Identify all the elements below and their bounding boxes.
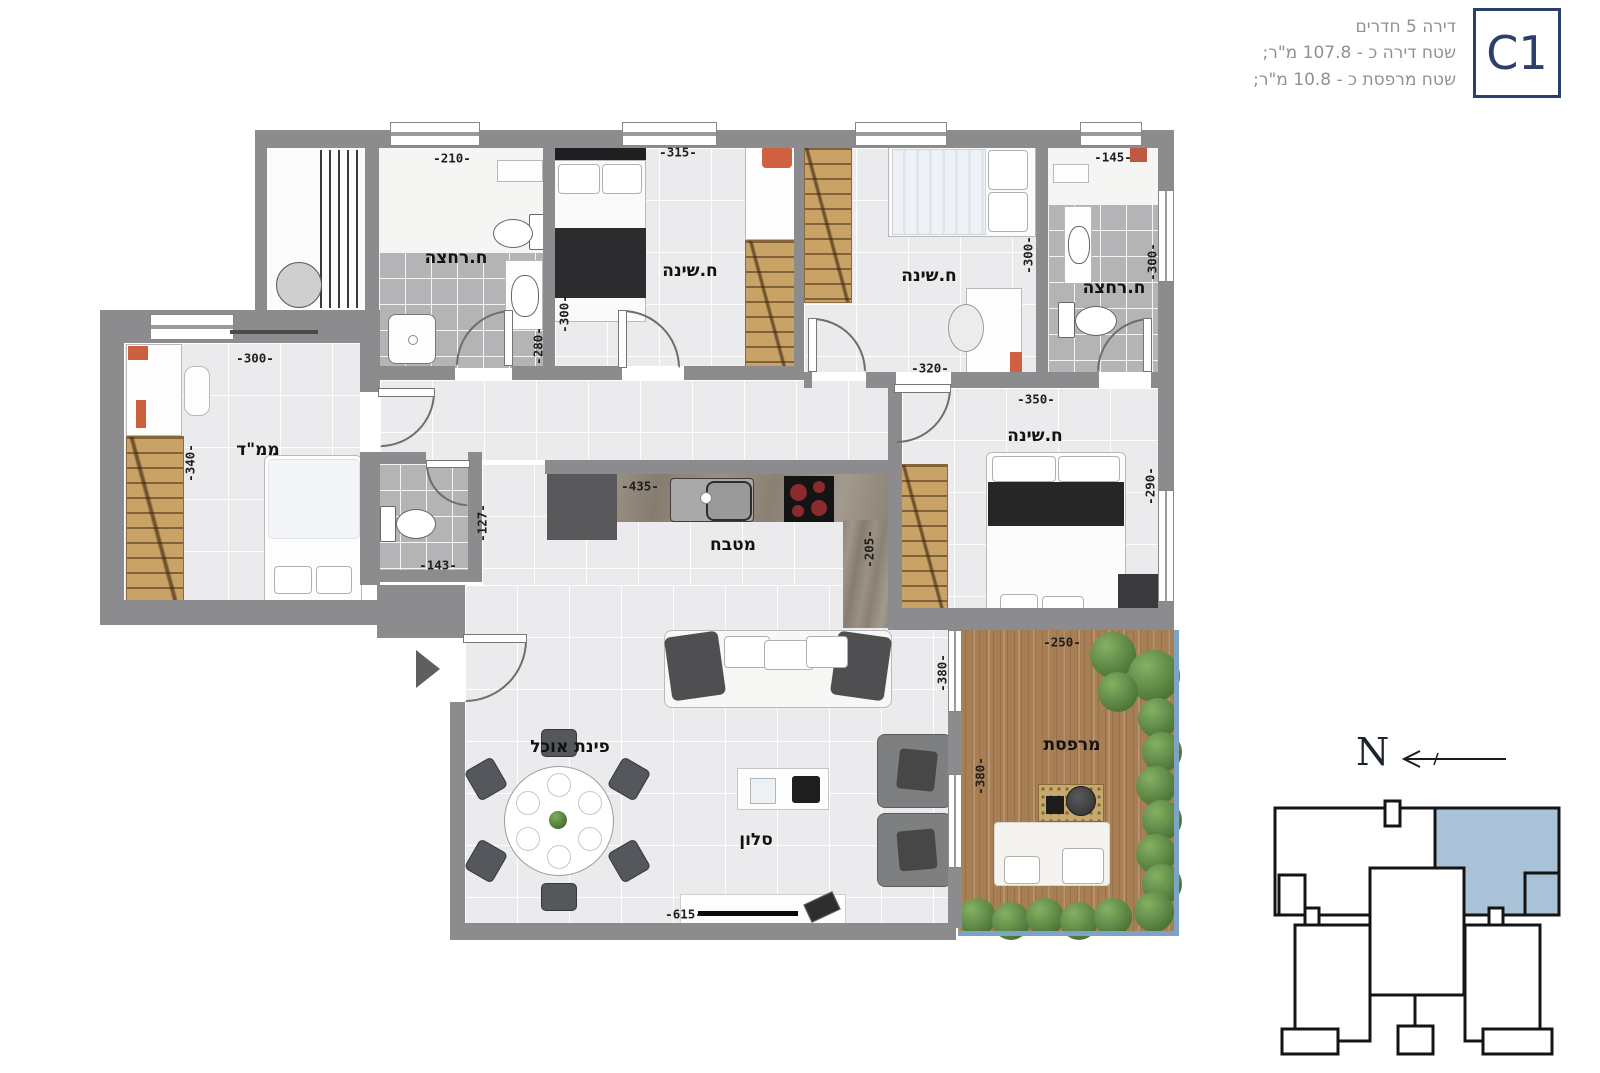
room-label-bath1: ח.רחצה [425, 248, 488, 268]
dim-label: -205- [862, 530, 877, 568]
sofa-cushion-dark [664, 631, 726, 702]
north-arrow-icon [1394, 748, 1514, 770]
toilet-tank [380, 506, 396, 542]
dining-chair [541, 883, 577, 911]
window [150, 314, 234, 340]
shower-drain [408, 335, 418, 345]
room-label-mamad: ממ"ד [236, 440, 279, 460]
room-label-bath2: ח.רחצה [1083, 278, 1146, 298]
dim-label: -300- [1021, 236, 1036, 274]
pillow [602, 164, 642, 194]
sink-basin [1068, 226, 1090, 264]
toilet-bowl [396, 509, 436, 539]
outdoor-cushion [1004, 856, 1040, 884]
window [390, 122, 480, 146]
room-label-living: סלון [739, 830, 773, 850]
window [1080, 122, 1142, 146]
dim-label: -300- [557, 295, 572, 333]
sliding-door [948, 630, 962, 712]
plate [578, 791, 602, 815]
unit-code-badge: C1 [1473, 8, 1561, 98]
pillow [558, 164, 600, 194]
pillow [988, 192, 1028, 232]
toilet-bowl [493, 219, 533, 248]
room-label-bed1: ח.שינה [662, 261, 717, 281]
coffee-table-book [750, 778, 776, 804]
bed-duvet [268, 459, 360, 539]
cabinet-accent [136, 400, 146, 428]
wall [450, 923, 956, 940]
wall [804, 372, 812, 388]
bath-accent [1130, 148, 1147, 162]
dim-label: -350- [1017, 392, 1055, 407]
tv [698, 911, 798, 916]
wall [888, 608, 1172, 630]
burner [792, 505, 804, 517]
bed-duvet [892, 149, 986, 235]
outdoor-table-top [1066, 786, 1096, 816]
apartment-area: שטח דירה כ - 107.8 מ"ר; [1253, 40, 1456, 66]
wall [450, 702, 465, 940]
door-leaf [378, 388, 435, 397]
wall [100, 600, 380, 625]
desk-chair [948, 304, 984, 352]
plate [578, 827, 602, 851]
door-leaf [894, 384, 951, 393]
dim-label: -340- [183, 444, 198, 482]
bathroom2-counter [1053, 164, 1089, 183]
door-leaf [504, 310, 513, 366]
wardrobe [126, 436, 184, 606]
toilet-bowl [1075, 306, 1117, 336]
burner [813, 481, 825, 493]
dim-label: -435- [621, 479, 659, 494]
wall [794, 130, 804, 380]
sliding-door [948, 774, 962, 868]
table-centerpiece [549, 811, 567, 829]
door-leaf [463, 634, 527, 643]
entry-arrow-icon [416, 650, 440, 688]
room-label-balcony: מרפסת [1044, 735, 1101, 755]
window-track [230, 330, 318, 334]
outdoor-tray [1046, 796, 1064, 814]
wall [360, 452, 380, 585]
wall [365, 366, 455, 380]
burner [790, 484, 807, 501]
wall [866, 372, 896, 388]
wall [951, 372, 1099, 388]
door-leaf [618, 310, 627, 368]
wall [368, 452, 426, 464]
faucet [700, 492, 712, 504]
tree [1098, 672, 1138, 712]
balcony-area: שטח מרפסת כ - 10.8 מ"ר; [1253, 67, 1456, 93]
door-leaf [808, 318, 817, 372]
burner [811, 500, 827, 516]
dim-label: -300- [236, 351, 274, 366]
sink-bowl [706, 481, 752, 521]
cabinet-accent [128, 346, 148, 360]
room-label-master: ח.שינה [1007, 426, 1062, 446]
armchair-pillow [896, 828, 937, 871]
hedge [1134, 892, 1174, 932]
sofa-pillow [806, 636, 848, 668]
coffee-table-tray [792, 776, 820, 803]
pillow [988, 150, 1028, 190]
window [855, 122, 947, 146]
pillow [316, 566, 352, 594]
window [1158, 490, 1174, 602]
pillow [1058, 456, 1120, 482]
wall [1036, 130, 1048, 380]
door-leaf [1143, 318, 1152, 372]
outdoor-cushion [1062, 848, 1104, 884]
wardrobe [745, 240, 795, 380]
window [622, 122, 717, 146]
dim-label: -320- [911, 361, 949, 376]
dim-label: -380- [973, 757, 988, 795]
floorplan-page: דירה 5 חדרים שטח דירה כ - 107.8 מ"ר; שטח… [0, 0, 1600, 1067]
wall [545, 460, 890, 474]
mamad-sink [184, 366, 210, 416]
dim-label: -380- [935, 654, 950, 692]
elevator-circle [276, 262, 322, 308]
dim-label: -290- [1143, 467, 1158, 505]
wardrobe [900, 464, 948, 612]
door-leaf [426, 460, 470, 468]
wall [1151, 372, 1172, 388]
refrigerator [547, 474, 617, 540]
wall [543, 366, 622, 380]
dim-label: -300- [1145, 243, 1160, 281]
dim-label: -143- [419, 558, 457, 573]
apartment-type: דירה 5 חדרים [1253, 14, 1456, 40]
bed-blanket [552, 228, 646, 298]
dim-label: -145- [1094, 150, 1132, 165]
dim-label: -210- [433, 151, 471, 166]
plate [547, 773, 571, 797]
dim-label: -127- [475, 504, 490, 542]
armchair-pillow [896, 748, 938, 792]
wall [684, 366, 804, 380]
wall [365, 130, 379, 312]
sink-basin [511, 275, 539, 317]
toilet-tank [1058, 302, 1075, 338]
wardrobe [804, 147, 852, 303]
desk-chair [762, 146, 792, 168]
plate [547, 845, 571, 869]
dim-label: -615- [665, 907, 703, 922]
dim-label: -250- [1043, 635, 1081, 650]
hall-floor [380, 380, 888, 460]
wall [948, 712, 962, 776]
dim-label: -315- [659, 145, 697, 160]
pillow [992, 456, 1056, 482]
room-label-bed2: ח.שינה [901, 266, 956, 286]
plate [516, 827, 540, 851]
balcony-railing-bottom [958, 931, 1179, 936]
building-keyplan [1252, 788, 1572, 1073]
stairs [320, 150, 362, 308]
wall [377, 585, 465, 638]
header-text: דירה 5 חדרים שטח דירה כ - 107.8 מ"ר; שטח… [1253, 14, 1456, 93]
cooktop [784, 476, 834, 522]
wall [948, 868, 962, 928]
pillow [274, 566, 312, 594]
wall [255, 130, 267, 312]
room-label-kitchen: מטבח [710, 535, 756, 555]
room-label-dining: פינת אוכל [530, 737, 610, 757]
wall [100, 310, 124, 625]
balcony-railing-right [1174, 630, 1179, 936]
bathroom1-counter [497, 160, 543, 182]
north-label: N [1356, 730, 1389, 774]
dim-label: -280- [531, 327, 546, 365]
plate [516, 791, 540, 815]
bed-blanket [988, 482, 1124, 526]
window [1158, 190, 1174, 282]
